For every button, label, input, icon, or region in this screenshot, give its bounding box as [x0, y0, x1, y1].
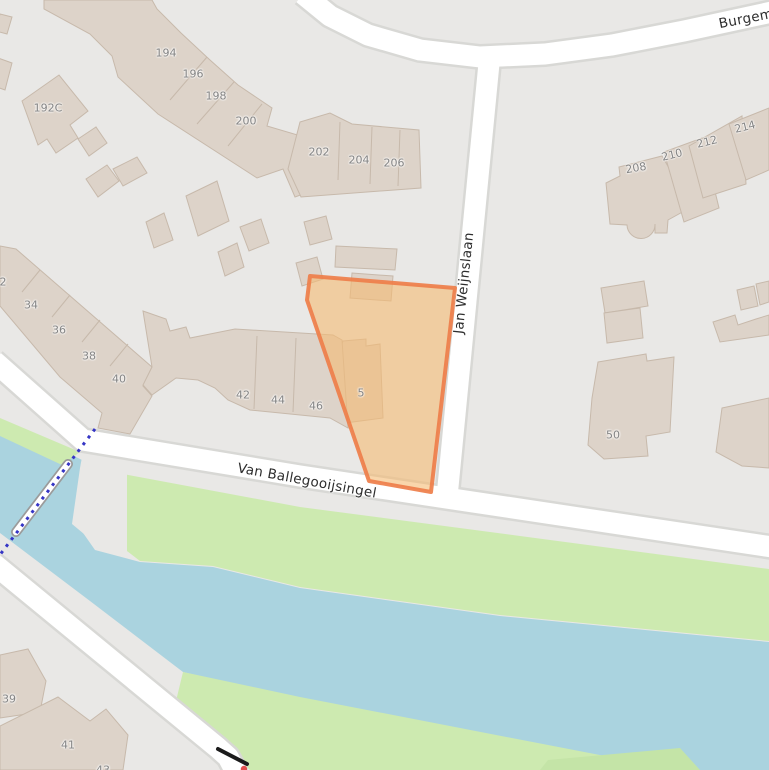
outbuilding	[604, 308, 643, 343]
outbuilding	[737, 286, 758, 310]
house-number-43: 43	[96, 764, 110, 770]
house-number-50: 50	[606, 429, 620, 442]
house-number-46: 46	[309, 400, 323, 413]
house-number-194: 194	[156, 47, 177, 60]
house-number-204: 204	[349, 154, 370, 167]
house-number-36: 36	[52, 324, 66, 337]
house-number-38: 38	[82, 350, 96, 363]
house-number-198: 198	[206, 90, 227, 103]
building-above-parcel	[335, 246, 397, 270]
map-canvas[interactable]: 194 196 198 200 202 204 206 192C 208 210…	[0, 0, 769, 770]
house-number-39: 39	[2, 693, 16, 706]
house-number-2: 2	[0, 276, 7, 289]
house-number-5: 5	[358, 387, 365, 400]
house-number-40: 40	[112, 373, 126, 386]
house-number-44: 44	[271, 394, 285, 407]
house-number-41: 41	[61, 739, 75, 752]
house-number-34: 34	[24, 299, 38, 312]
house-number-192c: 192C	[34, 102, 63, 115]
house-number-196: 196	[183, 68, 204, 81]
house-number-200: 200	[236, 115, 257, 128]
house-number-42: 42	[236, 389, 250, 402]
house-number-202: 202	[309, 146, 330, 159]
house-number-206: 206	[384, 157, 405, 170]
